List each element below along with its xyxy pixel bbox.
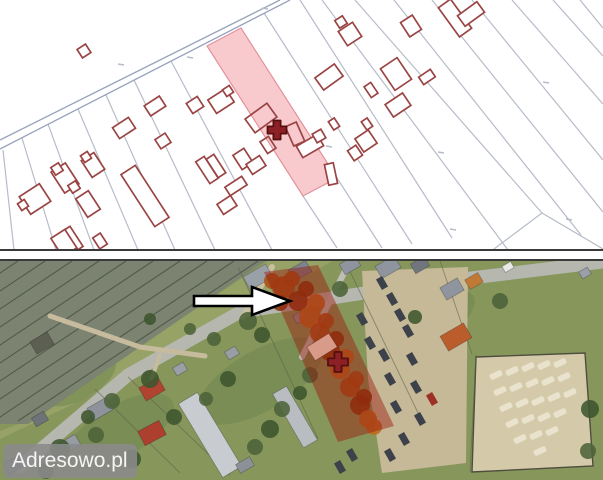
watermark-text: Adresowo.pl [12,449,128,472]
aerial-photo-panel[interactable]: Adresowo.pl [0,259,603,480]
property-location-maps: Adresowo.pl [0,0,603,480]
cadastral-map-panel[interactable] [0,0,603,251]
watermark-badge: Adresowo.pl [3,444,137,478]
cadastral-map-canvas [0,0,603,249]
